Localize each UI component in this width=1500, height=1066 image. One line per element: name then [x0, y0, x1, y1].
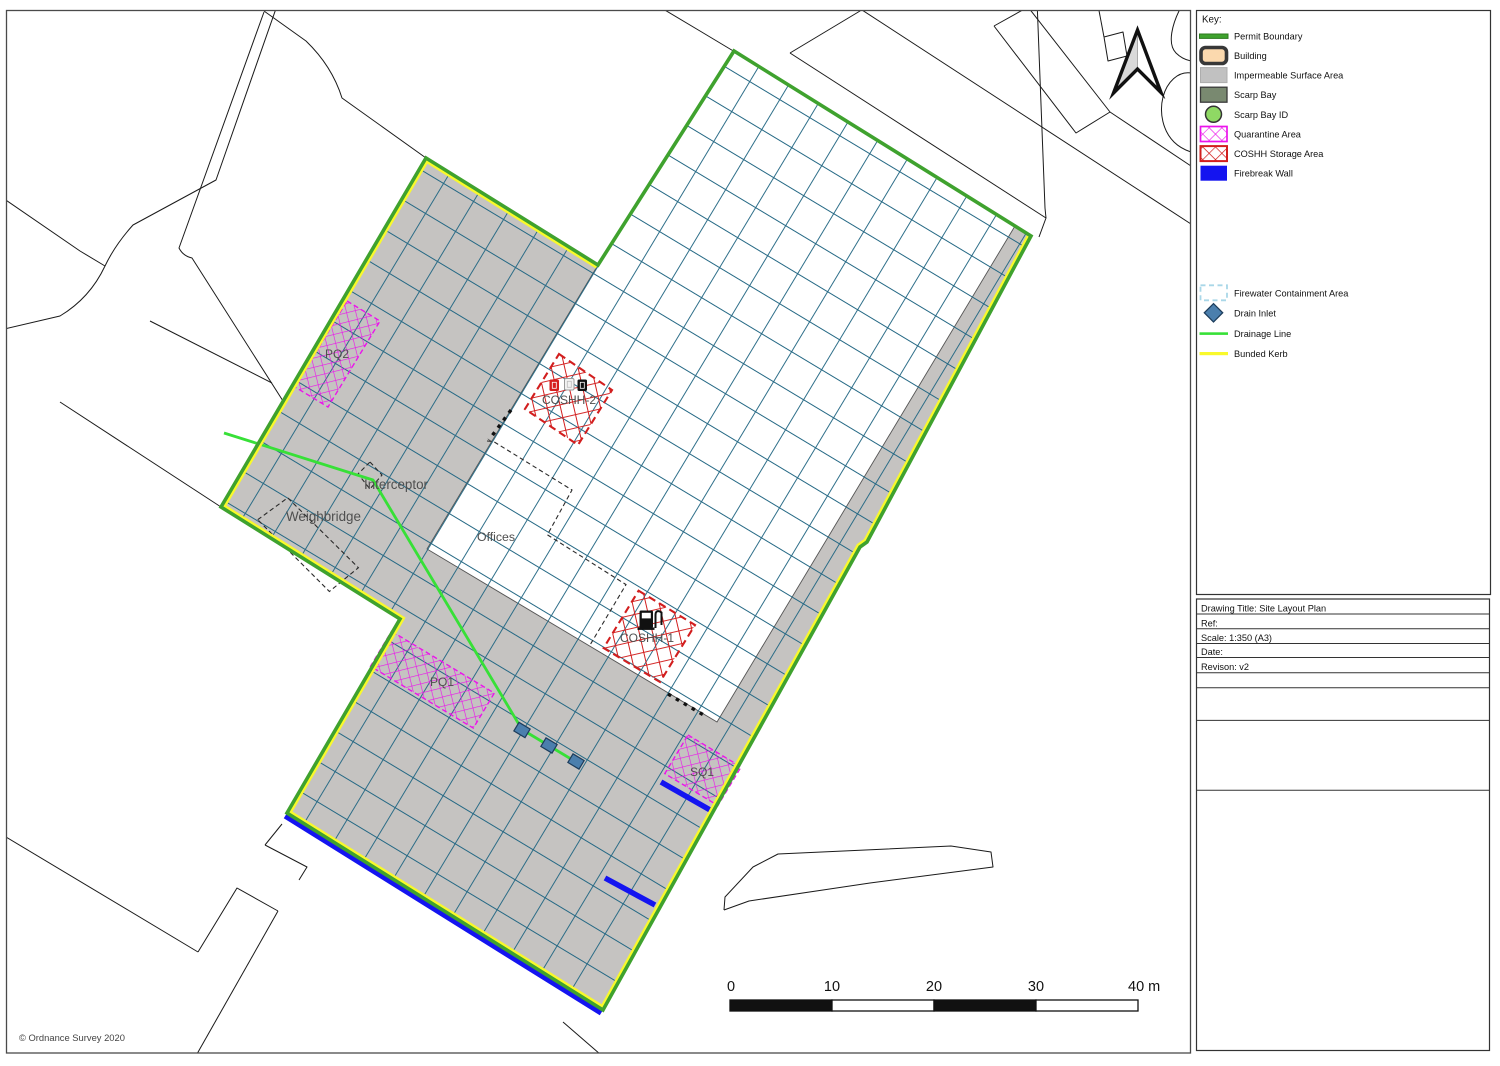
svg-text:Ref:: Ref:	[1201, 618, 1218, 628]
svg-text:10: 10	[824, 979, 840, 995]
svg-text:Drain Inlet: Drain Inlet	[1234, 308, 1276, 318]
svg-text:Key:: Key:	[1202, 15, 1222, 26]
svg-text:Date:: Date:	[1201, 647, 1223, 657]
svg-text:Scale: 1:350 (A3): Scale: 1:350 (A3)	[1201, 633, 1272, 643]
svg-text:20: 20	[926, 979, 942, 995]
svg-text:PQ2: PQ2	[325, 347, 349, 361]
svg-text:Revison: v2: Revison: v2	[1201, 662, 1249, 672]
svg-text:0: 0	[727, 979, 735, 995]
svg-text:Firebreak Wall: Firebreak Wall	[1234, 169, 1293, 179]
svg-text:Firewater Containment Area: Firewater Containment Area	[1234, 288, 1349, 298]
svg-text:Offices: Offices	[477, 530, 515, 544]
svg-text:COSHH-1: COSHH-1	[620, 631, 674, 645]
svg-text:Impermeable Surface Area: Impermeable Surface Area	[1234, 71, 1344, 81]
svg-text:Scarp Bay ID: Scarp Bay ID	[1234, 110, 1288, 120]
svg-text:COSHH-2: COSHH-2	[542, 393, 596, 407]
svg-text:40 m: 40 m	[1128, 979, 1160, 995]
svg-text:Drainage Line: Drainage Line	[1234, 329, 1291, 339]
svg-text:Quarantine Area: Quarantine Area	[1234, 130, 1302, 140]
svg-text:30: 30	[1028, 979, 1044, 995]
svg-text:Drawing Title: Site Layout Pla: Drawing Title: Site Layout Plan	[1201, 604, 1326, 614]
svg-text:Interceptor: Interceptor	[364, 477, 429, 492]
svg-text:Building: Building	[1234, 51, 1267, 61]
svg-text:© Ordnance Survey 2020: © Ordnance Survey 2020	[19, 1032, 125, 1043]
svg-text:PQ1: PQ1	[430, 675, 454, 689]
svg-text:COSHH Storage Area: COSHH Storage Area	[1234, 149, 1324, 159]
svg-text:Weighbridge: Weighbridge	[286, 509, 361, 524]
svg-text:SQ1: SQ1	[690, 765, 714, 779]
svg-text:Scarp Bay: Scarp Bay	[1234, 90, 1277, 100]
svg-text:Permit Boundary: Permit Boundary	[1234, 32, 1303, 42]
svg-text:Bunded Kerb: Bunded Kerb	[1234, 349, 1288, 359]
